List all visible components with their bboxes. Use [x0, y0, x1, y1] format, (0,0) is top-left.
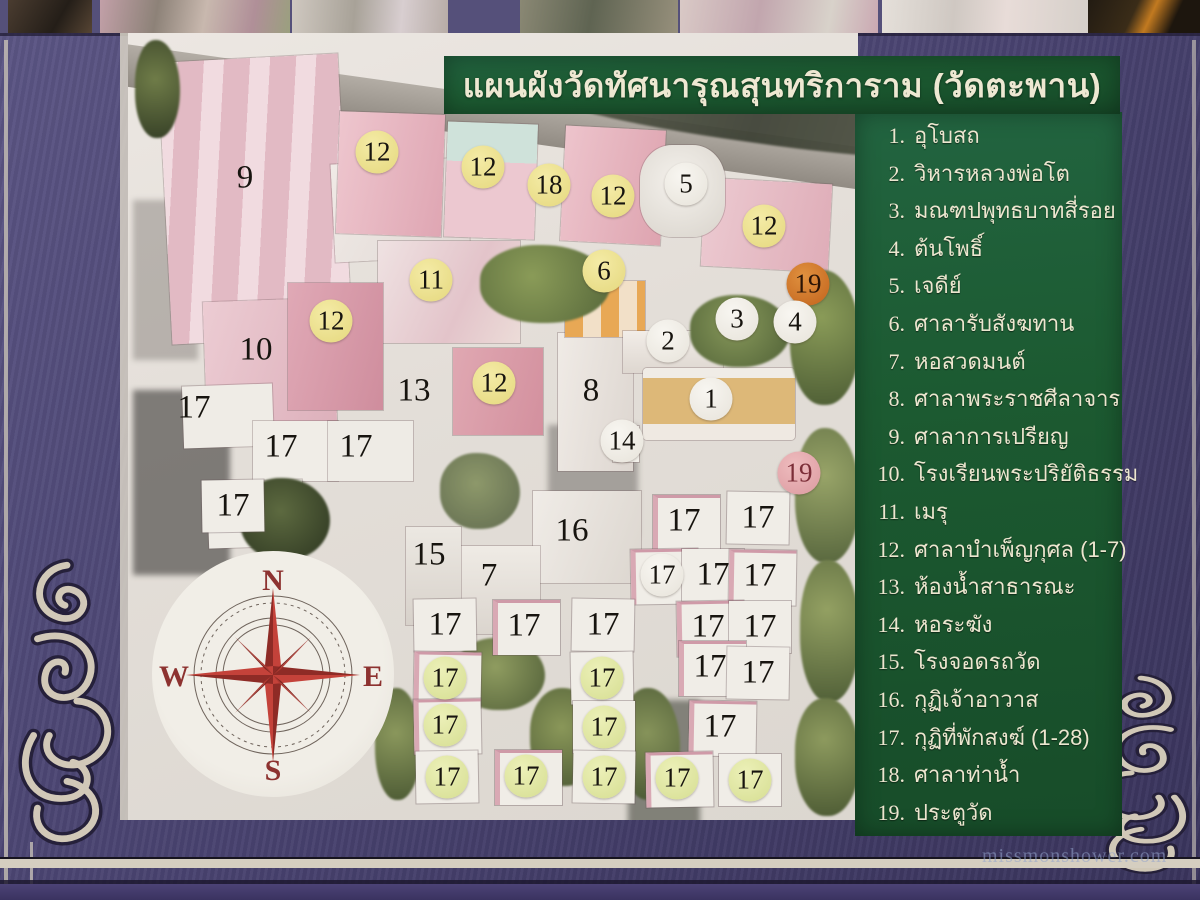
legend-item-label: ศาลาท่าน้ำ: [914, 757, 1020, 792]
legend-item-label: ห้องน้ำสาธารณะ: [914, 569, 1075, 604]
legend-item-number: 10.: [865, 461, 914, 487]
map-building: [253, 421, 338, 481]
compass-rose-graphic: N S W E: [152, 554, 394, 796]
map-ubosot: [643, 368, 795, 440]
legend-item: 19.ประตูวัด: [865, 795, 1122, 833]
legend-item-number: 18.: [865, 762, 914, 788]
legend-item-number: 12.: [865, 537, 914, 563]
legend-item-label: กุฏิเจ้าอาวาส: [914, 682, 1039, 717]
legend-item: 14.หอระฆัง: [865, 607, 1122, 645]
legend-item: 17.กุฏิที่พักสงฆ์ (1-28): [865, 720, 1122, 758]
legend-item-label: วิหารหลวงพ่อโต: [914, 156, 1070, 191]
map-building: [336, 111, 445, 237]
legend-panel: 1.อุโบสถ2.วิหารหลวงพ่อโต3.มณฑปพุทธบาทสี่…: [855, 112, 1122, 836]
legend-item: 10.โรงเรียนพระปริยัติธรรม: [865, 456, 1122, 494]
legend-item-label: ศาลาการเปรียญ: [914, 419, 1069, 454]
legend-item-number: 15.: [865, 649, 914, 675]
sign-edge-strip: [120, 33, 128, 820]
map-trees: [455, 638, 545, 710]
legend-item-number: 19.: [865, 800, 914, 826]
compass-rose: N S W E: [152, 554, 394, 796]
legend-item-number: 8.: [865, 386, 914, 412]
map-building: [406, 527, 461, 625]
legend-item-label: กุฏิที่พักสงฆ์ (1-28): [914, 720, 1090, 755]
scroll-ornament-graphic: [8, 548, 126, 854]
background-photo: [680, 0, 878, 34]
legend-item: 18.ศาลาท่าน้ำ: [865, 757, 1122, 795]
frame-scroll-ornament: [8, 548, 126, 854]
legend-item-label: หอระฆัง: [914, 607, 992, 642]
legend-item: 12.ศาลาบำเพ็ญกุศล (1-7): [865, 532, 1122, 570]
background-photo: [8, 0, 92, 34]
frame-bottom-band: [0, 884, 1200, 900]
background-photo: [882, 0, 1088, 34]
legend-item-label: ศาลาพระราชศีลาจาร: [914, 381, 1120, 416]
map-trees: [135, 40, 180, 138]
legend-item-number: 1.: [865, 123, 914, 149]
legend-item: 16.กุฏิเจ้าอาวาส: [865, 682, 1122, 720]
legend-item-label: หอสวดมนต์: [914, 344, 1026, 379]
legend-item: 3.มณฑปพุทธบาทสี่รอย: [865, 193, 1122, 231]
legend-item-number: 9.: [865, 424, 914, 450]
legend-item-number: 13.: [865, 574, 914, 600]
map-trees: [530, 688, 600, 786]
map-trees: [240, 478, 330, 560]
legend-item-number: 3.: [865, 198, 914, 224]
legend-item-label: เมรุ: [914, 494, 948, 529]
map-trees: [800, 560, 858, 702]
map-trees: [790, 270, 858, 405]
legend-item: 2.วิหารหลวงพ่อโต: [865, 156, 1122, 194]
legend-item-number: 17.: [865, 725, 914, 751]
legend-item-label: โรงเรียนพระปริยัติธรรม: [914, 456, 1138, 491]
legend-item-number: 11.: [865, 499, 914, 525]
map-title-banner: แผนผังวัดทัศนารุณสุนทริการาม (วัดตะพาน): [444, 56, 1120, 114]
compass-west-label: W: [159, 660, 189, 693]
background-photo: [292, 0, 448, 34]
legend-item-number: 2.: [865, 161, 914, 187]
legend-item-label: ต้นโพธิ์: [914, 231, 983, 266]
legend-item: 8.ศาลาพระราชศีลาจาร: [865, 381, 1122, 419]
legend-item: 4.ต้นโพธิ์: [865, 231, 1122, 269]
map-trees: [795, 428, 858, 563]
legend-item-label: เจดีย์: [914, 268, 962, 303]
map-building: [328, 421, 413, 481]
compass-east-label: E: [363, 660, 383, 693]
map-trees: [690, 295, 790, 367]
legend-item: 13.ห้องน้ำสาธารณะ: [865, 569, 1122, 607]
legend-item-label: ประตูวัด: [914, 795, 993, 830]
background-photo: [100, 0, 290, 34]
map-bell-tower: [613, 426, 639, 462]
map-trees: [440, 453, 520, 529]
legend-item-label: โรงจอดรถวัด: [914, 644, 1041, 679]
map-building: [533, 491, 641, 583]
map-trees: [620, 688, 680, 800]
map-building: [288, 283, 383, 410]
map-trees: [480, 245, 610, 323]
legend-item: 7.หอสวดมนต์: [865, 344, 1122, 382]
legend-item-number: 6.: [865, 311, 914, 337]
legend-item: 6.ศาลารับสังฆทาน: [865, 306, 1122, 344]
legend-item-number: 16.: [865, 687, 914, 713]
background-photo: [520, 0, 678, 34]
legend-item: 11.เมรุ: [865, 494, 1122, 532]
legend-item-label: อุโบสถ: [914, 118, 980, 153]
map-building: [453, 348, 543, 435]
map-building: [458, 546, 540, 634]
background-photo-strip: [0, 0, 1200, 34]
legend-item-label: ศาลารับสังฆทาน: [914, 306, 1074, 341]
legend-item: 9.ศาลาการเปรียญ: [865, 419, 1122, 457]
legend-item-number: 4.: [865, 236, 914, 262]
compass-south-label: S: [265, 754, 282, 787]
legend-item-label: ศาลาบำเพ็ญกุศล (1-7): [914, 532, 1127, 567]
background-photo: [1088, 0, 1200, 34]
map-trees: [795, 698, 858, 816]
legend-item-number: 7.: [865, 349, 914, 375]
watermark: missmonshower.com: [982, 845, 1167, 868]
map-chedi: [640, 145, 725, 237]
map-building: [444, 121, 538, 239]
legend-item: 5.เจดีย์: [865, 268, 1122, 306]
sign-title: แผนผังวัดทัศนารุณสุนทริการาม (วัดตะพาน): [463, 59, 1102, 112]
legend-item-number: 14.: [865, 612, 914, 638]
legend-item-number: 5.: [865, 273, 914, 299]
legend-item-label: มณฑปพุทธบาทสี่รอย: [914, 193, 1116, 228]
compass-north-label: N: [262, 564, 284, 597]
legend-item: 15.โรงจอดรถวัด: [865, 644, 1122, 682]
legend-item: 1.อุโบสถ: [865, 118, 1122, 156]
